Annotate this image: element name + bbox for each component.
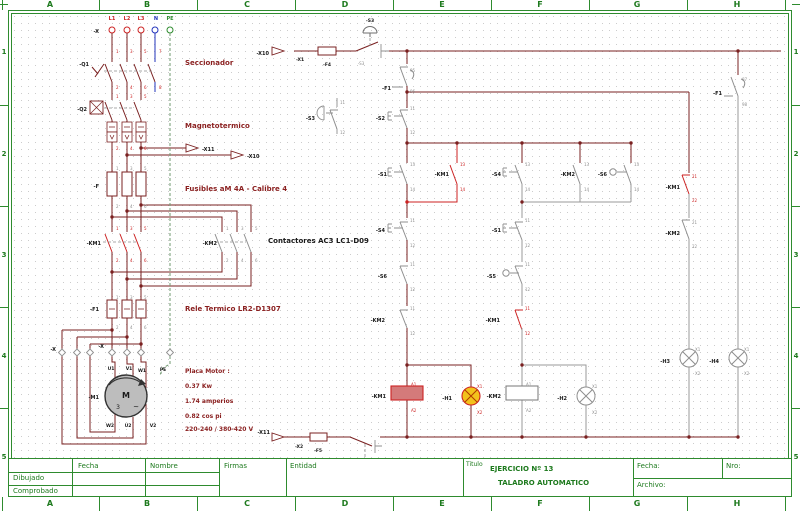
km2nc-12: 12: [410, 331, 416, 336]
breaker-q2-symbol: [105, 102, 141, 120]
grid-tick-left-3: [0, 307, 8, 308]
s2-label: -S2: [376, 116, 386, 122]
s4-nc-label: -S4: [376, 228, 386, 234]
km1nc-11: 11: [525, 306, 531, 311]
s4-no-label: -S4: [492, 172, 502, 178]
grid-col-F-top: F: [529, 0, 551, 9]
x11-arrow-label: -X11: [202, 147, 215, 153]
x10-src-label: -X10: [257, 51, 270, 57]
placa-volt: 220-240 / 380-420 V: [185, 426, 254, 433]
f4-label: -F4: [323, 62, 331, 68]
h3-label: -H3: [660, 359, 670, 365]
grid-tick-left-2: [0, 206, 8, 207]
mushroom-head-icon: [363, 27, 377, 37]
h1-label: -H1: [442, 396, 452, 402]
control-contacts: [330, 67, 745, 328]
f-n2: 2: [116, 204, 119, 209]
s3-mushroom-label: -S3: [366, 18, 374, 24]
km2p-n1: 1: [226, 226, 229, 231]
q2-n4: 4: [130, 146, 133, 151]
grid-tick-right-4: [792, 408, 800, 409]
s6-13: 13: [634, 162, 640, 167]
q1-n8: 8: [159, 85, 162, 90]
grid-tick-left-4: [0, 408, 8, 409]
q2-n2: 2: [116, 146, 119, 151]
earth-pe: PE: [166, 16, 174, 22]
motor-u1: U1: [108, 366, 115, 372]
grid-tick-top-4: [393, 0, 394, 10]
s6-14: 14: [634, 187, 640, 192]
s5-nc-label: -S5: [487, 274, 497, 280]
km1p-n5: 5: [144, 226, 147, 231]
f1p-n6: 6: [144, 325, 147, 330]
h4-x2: X2: [744, 371, 750, 376]
grid-tick-top-1: [99, 0, 100, 10]
phase-l2: L2: [124, 16, 131, 22]
grid-tick-bottom-4: [393, 497, 394, 511]
km2-22: 22: [692, 244, 698, 249]
f1-no-label: -F1: [713, 91, 722, 97]
grid-row-4-left: 4: [0, 352, 8, 360]
grid-col-E-bottom: E: [431, 499, 453, 508]
s1nc-12: 12: [525, 243, 531, 248]
s5nc-11: 11: [525, 262, 531, 267]
km1p-n6: 6: [144, 258, 147, 263]
grid-tick-right-3: [792, 307, 800, 308]
grid-row-1-right: 1: [792, 48, 800, 56]
s2-11: 11: [410, 106, 416, 111]
grid-row-2-left: 2: [0, 150, 8, 158]
grid-tick-bottom-3: [295, 497, 296, 511]
grid-tick-right-1: [792, 105, 800, 106]
km1-2122-label: -KM1: [666, 185, 681, 191]
f-n4: 4: [130, 204, 133, 209]
s6-roller-icon: [610, 169, 616, 175]
grid-tick-right-0: [792, 4, 800, 5]
f1p-n4: 4: [130, 325, 133, 330]
h2-x1: X1: [592, 384, 598, 389]
grid-tick-top-3: [295, 0, 296, 10]
km2p-n5: 5: [255, 226, 258, 231]
s2-12: 12: [410, 130, 416, 135]
s3-switch-label: -S3: [358, 61, 365, 66]
grid-tick-top-5: [491, 0, 492, 10]
s3-aux-label: -S3: [306, 116, 316, 122]
s1-14: 14: [410, 187, 416, 192]
grid-tick-bottom-5: [491, 497, 492, 511]
km2-seal-14: 14: [584, 187, 590, 192]
s6-no-label: -S6: [598, 172, 608, 178]
grid-col-B-top: B: [136, 0, 158, 9]
q2-n1: 1: [116, 94, 119, 99]
xstrip1-label: -X: [50, 347, 56, 353]
grid-col-E-top: E: [431, 0, 453, 9]
km1-coil-label: -KM1: [372, 394, 387, 400]
km2nc-11: 11: [410, 306, 416, 311]
s4nc-11: 11: [410, 218, 416, 223]
h1-lamp-icon: [462, 387, 480, 405]
km2-coil: [506, 386, 538, 400]
s4-13: 13: [525, 162, 531, 167]
s4-14: 14: [525, 187, 531, 192]
f1p-n1: 1: [116, 295, 119, 300]
km1nc-12: 12: [525, 331, 531, 336]
phase-l1: L1: [109, 16, 116, 22]
s6nc-12: 12: [410, 287, 416, 292]
x1-label: -X1: [296, 57, 304, 63]
km2-power-contacts: [215, 234, 251, 252]
mushroom-dashes: [365, 38, 370, 457]
motor-tilde: ~: [133, 403, 139, 411]
placa-amp: 1.74 amperios: [185, 398, 234, 405]
fusibles-text: Fusibles aM 4A - Calibre 4: [185, 185, 287, 193]
f-n1: 1: [116, 166, 119, 171]
h1-x2: X2: [477, 410, 483, 415]
xstrip2-label: -X: [98, 344, 104, 350]
control-wires-energized: [407, 143, 690, 330]
km2p-n2: 2: [226, 258, 229, 263]
km1p-n1: 1: [116, 226, 119, 231]
km1p-n2: 2: [116, 258, 119, 263]
grid-col-C-bottom: C: [236, 499, 258, 508]
s4nc-12: 12: [410, 243, 416, 248]
grid-tick-bottom-0: [2, 497, 3, 511]
grid-tick-top-2: [197, 0, 198, 10]
grid-col-D-top: D: [334, 0, 356, 9]
km2-nc-label: -KM2: [371, 318, 386, 324]
f1-ctrl-label: -F1: [382, 86, 391, 92]
km1-a2: A2: [411, 408, 417, 413]
main-switch-latch: [375, 44, 389, 453]
grid-col-H-bottom: H: [726, 499, 748, 508]
grid-col-G-bottom: G: [626, 499, 648, 508]
contactores-text: Contactores AC3 LC1-D09: [268, 237, 369, 245]
f-n5: 5: [144, 166, 147, 171]
magnetotermico-text: Magnetotermico: [185, 122, 250, 130]
q2-n5: 5: [144, 94, 147, 99]
motor-w2: W2: [106, 423, 114, 429]
phase-l3: L3: [138, 16, 145, 22]
disconnector-q1-symbol: [92, 64, 155, 82]
grid-tick-bottom-1: [99, 497, 100, 511]
km1-nc-label: -KM1: [486, 318, 501, 324]
grid-tick-bottom-2: [197, 497, 198, 511]
s6nc-11: 11: [410, 262, 416, 267]
km2-coil-label: -KM2: [487, 394, 502, 400]
motor-v2: V2: [150, 423, 157, 429]
x10-arrow-label: -X10: [247, 154, 260, 160]
h4-label: -H4: [709, 359, 719, 365]
grid-tick-right-2: [792, 206, 800, 207]
km2p-n6: 6: [255, 258, 258, 263]
km2-seal-13: 13: [584, 162, 590, 167]
s3-11: 11: [340, 100, 346, 105]
s3-12: 12: [340, 130, 346, 135]
q1-n2: 2: [116, 85, 119, 90]
grid-tick-bottom-7: [687, 497, 688, 511]
f5-label: -F5: [314, 448, 322, 454]
placa-cos: 0.82 cos pi: [185, 413, 222, 420]
km1-22: 22: [692, 198, 698, 203]
f-n3: 3: [130, 166, 133, 171]
motor-u2: U2: [125, 423, 132, 429]
km2-a1: A1: [526, 382, 532, 387]
grid-tick-top-6: [589, 0, 590, 10]
grid-col-G-top: G: [626, 0, 648, 9]
power-wires: [62, 33, 251, 444]
grid-row-1-left: 1: [0, 48, 8, 56]
km1-seal-label: -KM1: [435, 172, 450, 178]
s5nc-12: 12: [525, 287, 531, 292]
f1-98: 98: [742, 102, 748, 107]
f5-fuse-icon: [310, 433, 327, 441]
h4-x1: X1: [744, 347, 750, 352]
grid-row-5-right: 5: [792, 453, 800, 461]
motor-w1: W1: [138, 368, 146, 374]
grid-row-2-right: 2: [792, 150, 800, 158]
cad-schematic-page: { "colors": { "bk": "#1a1a1a", "mr": "#8…: [0, 0, 800, 511]
km2-a2: A2: [526, 408, 532, 413]
q1-n7: 7: [159, 49, 162, 54]
f1p-n5: 5: [144, 295, 147, 300]
f1-power-label: -F1: [90, 307, 99, 313]
q1-n3: 3: [130, 49, 133, 54]
motor-m: M: [122, 391, 130, 400]
h3-x1: X1: [695, 347, 701, 352]
grid-col-A-bottom: A: [39, 499, 61, 508]
junction-dot-energized: [405, 200, 408, 203]
grid-col-A-top: A: [39, 0, 61, 9]
s5-roller-icon: [503, 270, 509, 276]
f4-fuse-icon: [318, 47, 336, 55]
power-circuit: [59, 27, 252, 444]
terminal-strip-icon: [59, 349, 174, 356]
neutral-n: N: [154, 16, 158, 22]
km1-coil: [391, 386, 423, 400]
f1-97: 97: [742, 77, 748, 82]
q1-n5: 5: [144, 49, 147, 54]
m1-label: -M1: [88, 395, 99, 401]
x2-label: -X2: [295, 444, 303, 450]
grid-tick-top-8: [785, 0, 786, 10]
placa-kw: 0.37 Kw: [185, 383, 213, 390]
km1p-n4: 4: [130, 258, 133, 263]
km2-2122-label: -KM2: [666, 231, 681, 237]
km1-seal-14: 14: [460, 187, 466, 192]
q1-n1: 1: [116, 49, 119, 54]
rele-text: Rele Termico LR2-D1307: [185, 305, 281, 313]
q1-label: -Q1: [79, 62, 89, 68]
km2p-n3: 3: [241, 226, 244, 231]
q2-label: -Q2: [77, 107, 87, 113]
km2-seal-label: -KM2: [561, 172, 576, 178]
h2-x2: X2: [592, 410, 598, 415]
motor-3: 3: [116, 404, 120, 411]
h2-label: -H2: [557, 396, 567, 402]
h2-lamp-icon: [577, 387, 595, 405]
seccionador-text: Seccionador: [185, 59, 234, 67]
f-label: -F: [94, 184, 100, 190]
km2p-n4: 4: [241, 258, 244, 263]
km2-21: 21: [692, 220, 698, 225]
f1p-n2: 2: [116, 325, 119, 330]
km1-21: 21: [692, 174, 698, 179]
grid-row-4-right: 4: [792, 352, 800, 360]
f1p-n3: 3: [130, 295, 133, 300]
s6-nc-label: -S6: [378, 274, 388, 280]
s1-label: -S1: [378, 172, 388, 178]
grid-row-3-right: 3: [792, 251, 800, 259]
grid-tick-bottom-8: [785, 497, 786, 511]
grid-col-C-top: C: [236, 0, 258, 9]
f1-95: 95: [410, 68, 416, 73]
s1nc-11: 11: [525, 218, 531, 223]
power-fuses-icon: [107, 172, 146, 196]
q1-n4: 4: [130, 85, 133, 90]
km1-seal-13: 13: [460, 162, 466, 167]
grid-col-H-top: H: [726, 0, 748, 9]
grid-tick-top-7: [687, 0, 688, 10]
grid-tick-bottom-6: [589, 497, 590, 511]
breaker-elements-icon: [107, 122, 146, 142]
x11-x10-arrows-icon: [186, 144, 243, 159]
motor-v1: V1: [126, 366, 133, 372]
s1-13: 13: [410, 162, 416, 167]
grid-row-5-left: 5: [0, 453, 8, 461]
supply-terminals-icon: [109, 27, 173, 33]
placa-title: Placa Motor :: [185, 368, 230, 375]
grid-row-3-left: 3: [0, 251, 8, 259]
h3-x2: X2: [695, 371, 701, 376]
schematic-canvas: -XL1L2L3NPE-Q1Seccionador-Q2Magnetotermi…: [0, 0, 800, 511]
grid-col-F-bottom: F: [529, 499, 551, 508]
q2-n3: 3: [130, 94, 133, 99]
km1-power-label: -KM1: [87, 241, 102, 247]
h1-x1: X1: [477, 384, 483, 389]
km2-power-label: -KM2: [203, 241, 218, 247]
grid-tick-top-0: [2, 0, 3, 10]
f1-96: 96: [410, 89, 416, 94]
motor-pe: PE: [160, 367, 166, 373]
q1-n6: 6: [144, 85, 147, 90]
grid-tick-left-1: [0, 105, 8, 106]
grid-col-B-bottom: B: [136, 499, 158, 508]
s1-nc-label: -S1: [492, 228, 502, 234]
km1-a1: A1: [411, 382, 417, 387]
grid-tick-left-0: [0, 4, 8, 5]
km1p-n3: 3: [130, 226, 133, 231]
x11-bottom-label: -X11: [258, 430, 271, 436]
km1-power-contacts: [105, 234, 141, 252]
grid-col-D-bottom: D: [334, 499, 356, 508]
terminal-x-top: -X: [93, 29, 99, 35]
